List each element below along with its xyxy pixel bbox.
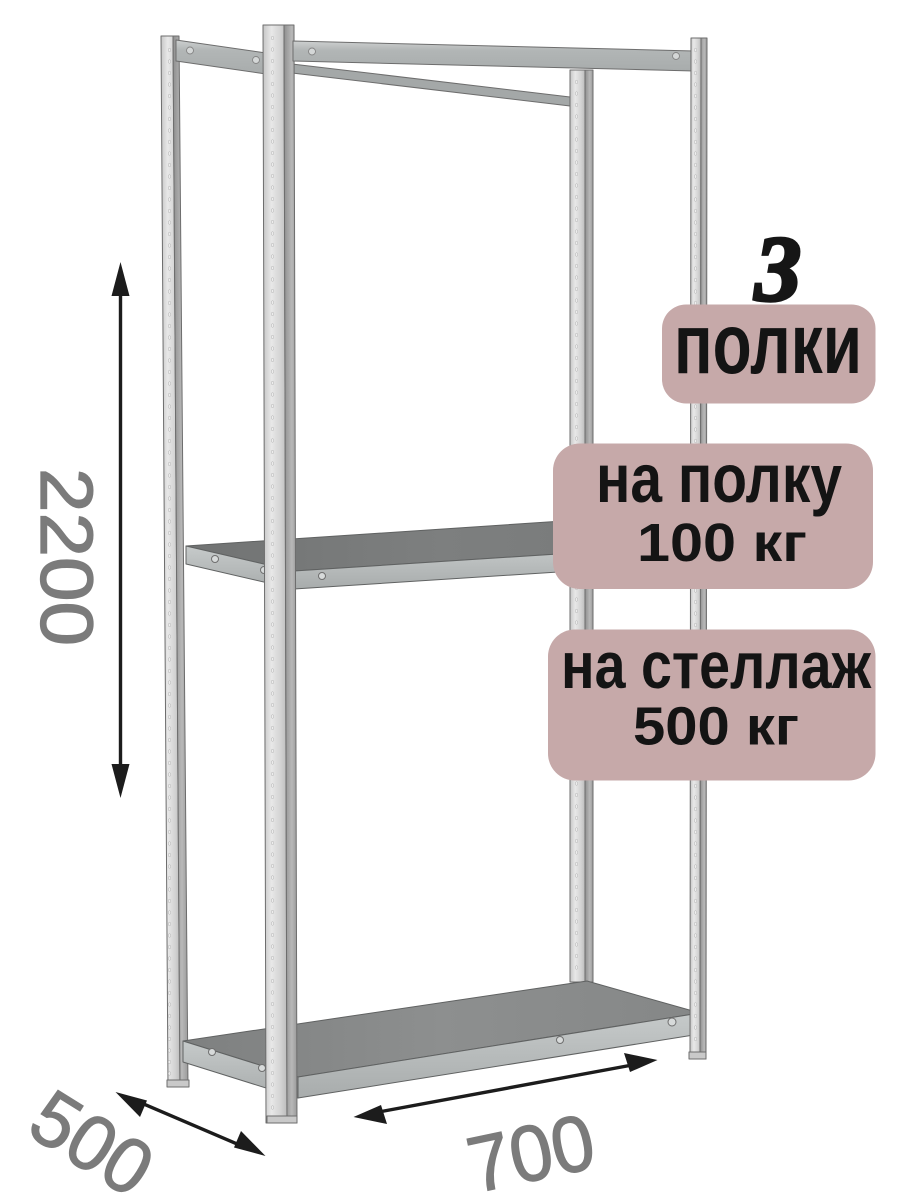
svg-text:100 кг: 100 кг	[637, 513, 807, 573]
svg-text:2200: 2200	[25, 468, 108, 646]
svg-text:полки: полки	[674, 297, 862, 392]
svg-text:500 кг: 500 кг	[633, 697, 799, 757]
svg-text:на стеллаж: на стеллаж	[561, 628, 872, 702]
svg-text:на полку: на полку	[596, 440, 842, 517]
